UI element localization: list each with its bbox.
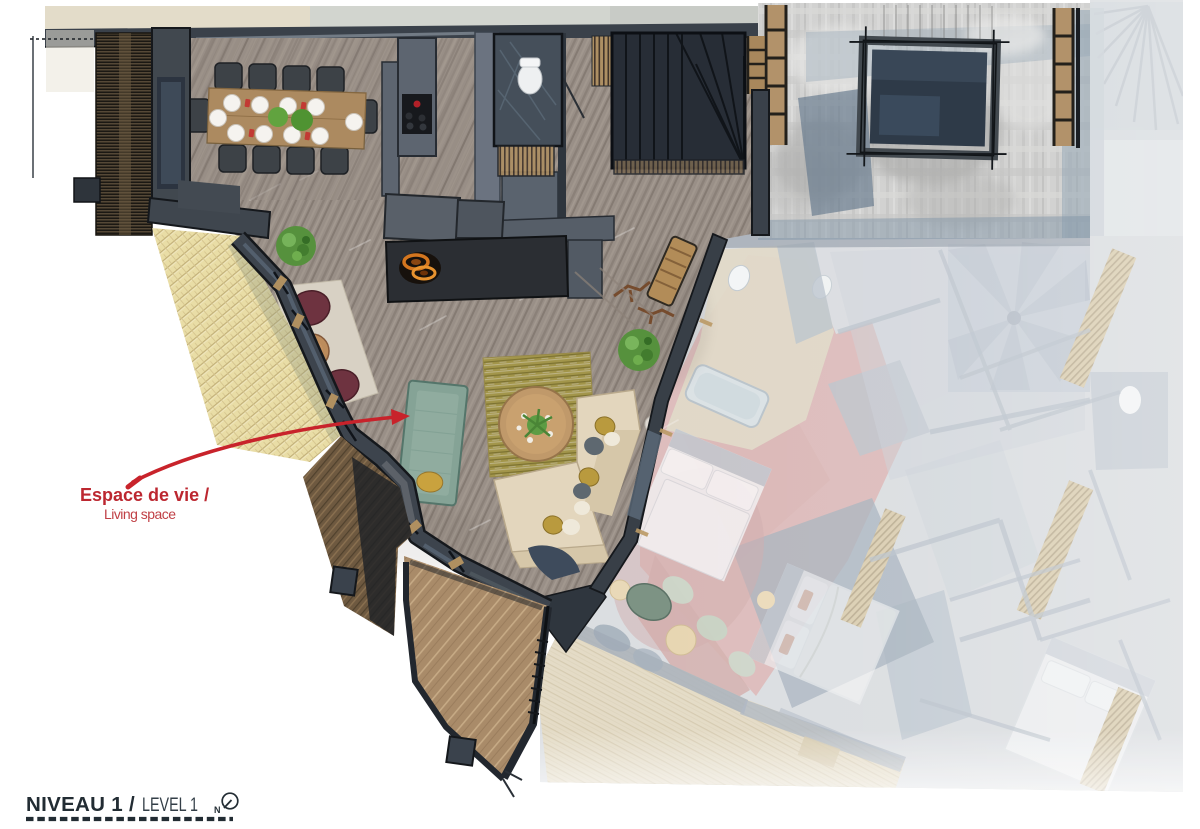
svg-text:Living space: Living space bbox=[104, 506, 176, 522]
svg-text:NIVEAU 1 /: NIVEAU 1 / bbox=[26, 793, 135, 816]
svg-text:Espace de vie /: Espace de vie / bbox=[80, 485, 209, 505]
svg-text:N: N bbox=[214, 805, 221, 815]
svg-text:LEVEL 1: LEVEL 1 bbox=[142, 794, 198, 816]
